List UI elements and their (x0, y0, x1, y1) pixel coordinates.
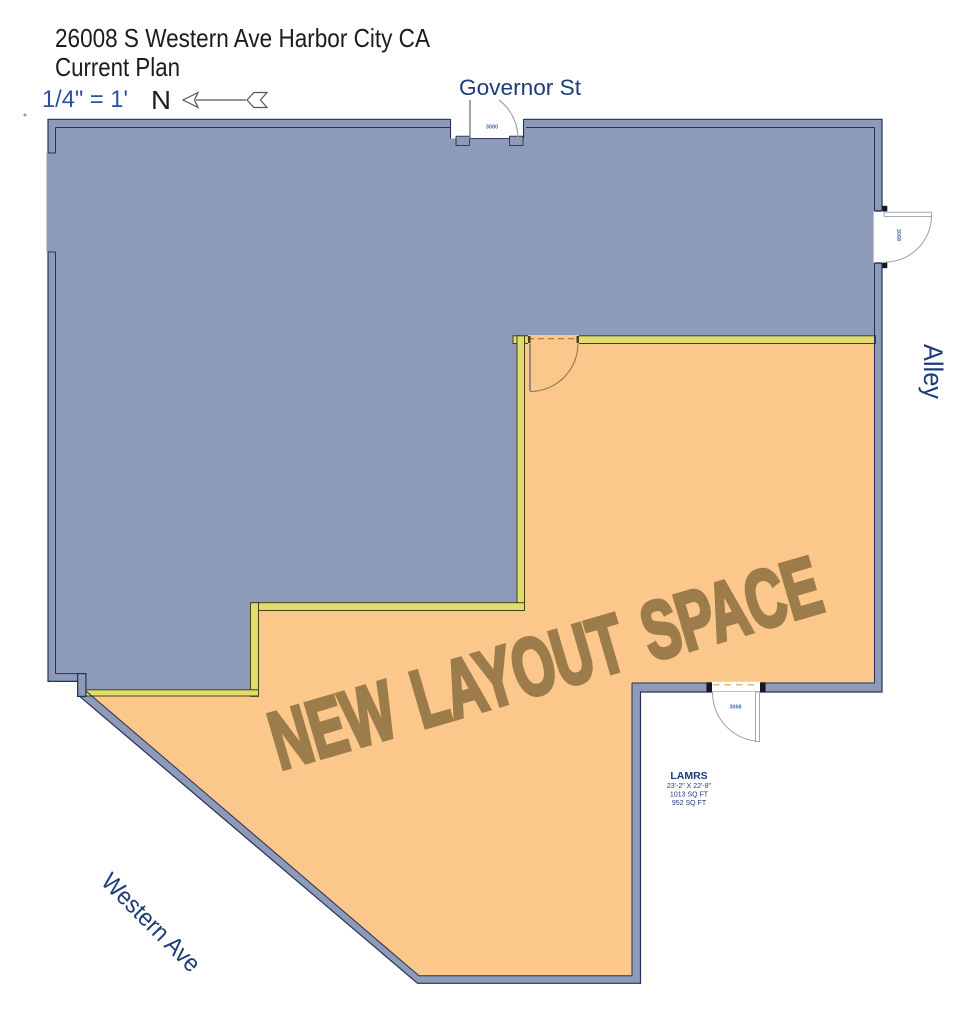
svg-text:1013 SQ FT: 1013 SQ FT (670, 792, 709, 799)
svg-text:23'-2" X 22'-8": 23'-2" X 22'-8" (667, 783, 712, 790)
svg-text:Governor St: Governor St (459, 75, 581, 100)
svg-text:952 SQ FT: 952 SQ FT (672, 800, 707, 807)
svg-text:3068: 3068 (729, 705, 741, 711)
svg-text:Alley: Alley (918, 344, 948, 399)
svg-text:26008 S Western Ave Harbor Cit: 26008 S Western Ave Harbor City CA (55, 23, 431, 53)
svg-text:Current Plan: Current Plan (55, 52, 180, 82)
svg-text:1/4" = 1': 1/4" = 1' (42, 86, 128, 113)
svg-text:3080: 3080 (486, 125, 498, 131)
svg-text:LAMRS: LAMRS (670, 770, 707, 782)
svg-text:N: N (151, 85, 171, 115)
svg-text:3068: 3068 (895, 229, 901, 241)
